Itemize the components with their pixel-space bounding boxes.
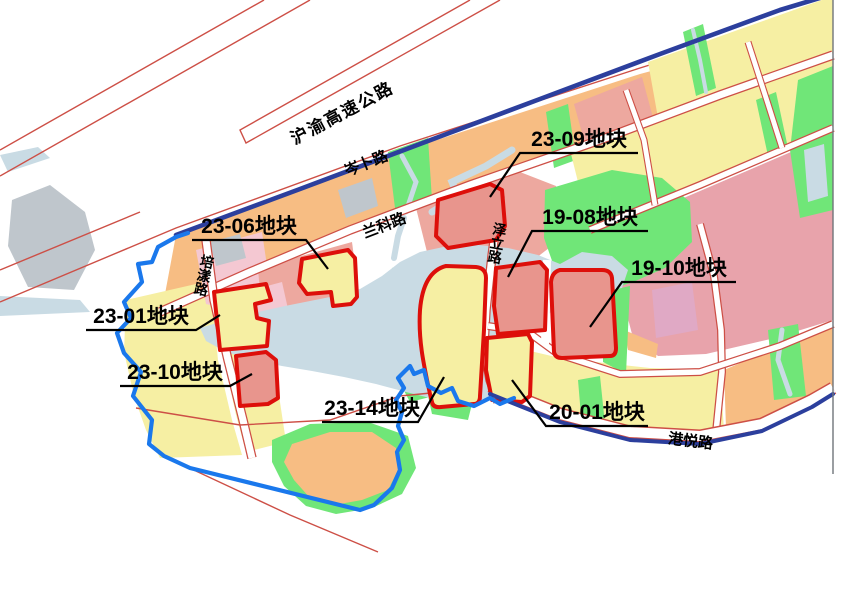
parcel-label-19-10: 19-10地块 [631, 256, 728, 280]
expressway-line [0, 0, 310, 176]
water-strip-lower [0, 296, 90, 316]
creek-pond-east [804, 144, 828, 202]
gray-area [8, 185, 95, 290]
offsite-shapes [0, 147, 95, 316]
parcel-20-01 [486, 334, 532, 402]
water-strip-upper [0, 147, 50, 172]
parcel-19-10 [551, 270, 616, 358]
road-label-expressway: 沪渝高速公路 [287, 77, 397, 148]
pink-block-patch [652, 282, 698, 338]
parcel-label-19-08: 19-08地块 [542, 205, 639, 229]
parcel-label-20-01: 20-01地块 [549, 400, 646, 424]
parcel-label-23-01: 23-01地块 [93, 304, 190, 328]
parcel-label-23-10: 23-10地块 [127, 360, 224, 384]
expressway-line [0, 0, 264, 150]
expressway-ramp-strip [240, 0, 500, 143]
parcel-label-23-06: 23-06地块 [201, 214, 298, 238]
parcel-label-23-09: 23-09地块 [531, 127, 628, 151]
planning-map: 沪渝高速公路 岑卜路 兰科路 泽立路 培漾路 港悦路 23-09地块 19-08… [0, 0, 866, 600]
parcel-label-23-14: 23-14地块 [324, 396, 421, 420]
parcel-19-08 [494, 262, 547, 334]
south-orange-area [272, 422, 416, 514]
